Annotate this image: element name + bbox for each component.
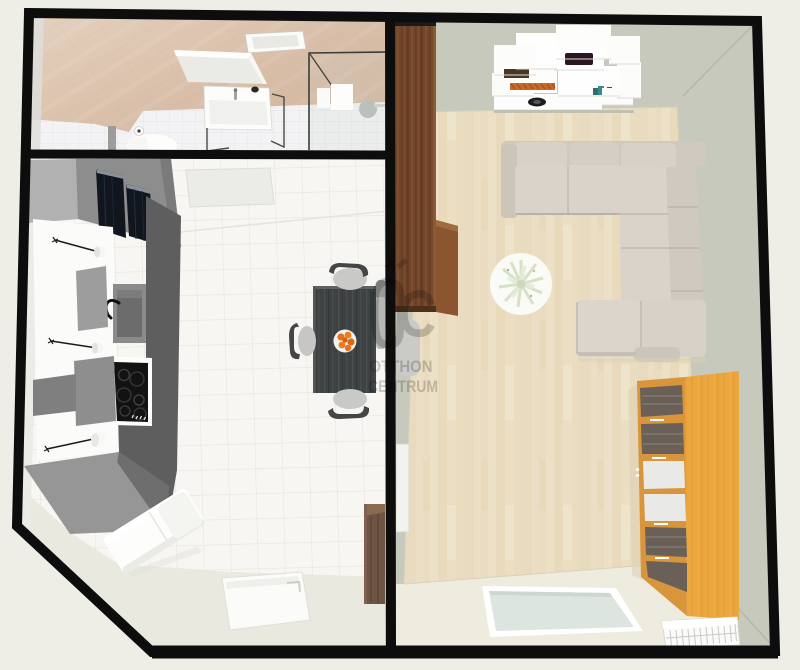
svg-text:OTTHON: OTTHON	[370, 358, 433, 376]
svg-text:CENTRUM: CENTRUM	[368, 378, 438, 396]
